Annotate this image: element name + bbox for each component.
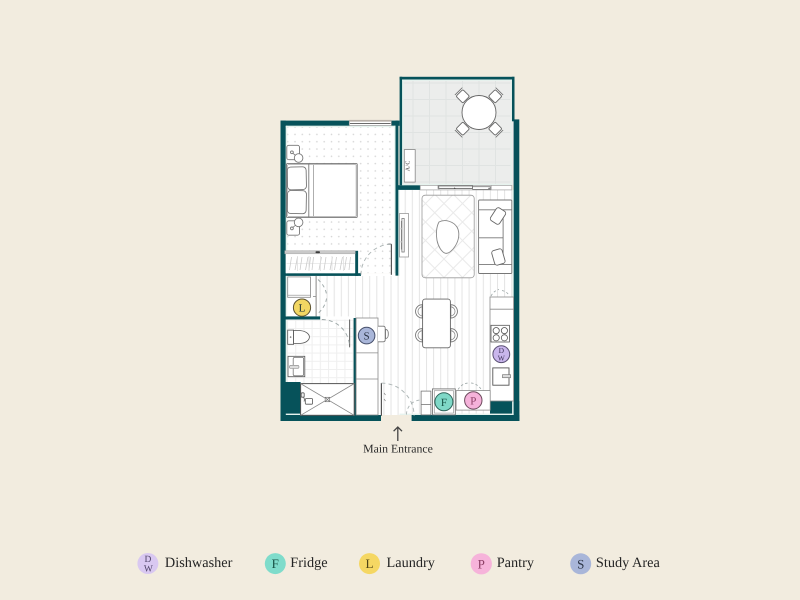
svg-text:Laundry: Laundry: [387, 555, 436, 571]
svg-text:A/C: A/C: [406, 160, 412, 171]
svg-text:S: S: [577, 556, 584, 571]
svg-text:F: F: [441, 397, 447, 409]
svg-text:S: S: [364, 331, 370, 343]
svg-text:Fridge: Fridge: [290, 555, 327, 571]
svg-text:Pantry: Pantry: [497, 555, 535, 571]
svg-text:Study Area: Study Area: [596, 555, 661, 571]
svg-text:Main Entrance: Main Entrance: [363, 442, 433, 456]
svg-text:P: P: [470, 395, 476, 407]
svg-text:P: P: [478, 556, 485, 571]
svg-text:W: W: [498, 354, 506, 363]
svg-text:L: L: [299, 303, 306, 315]
svg-text:Dishwasher: Dishwasher: [165, 555, 233, 571]
svg-text:F: F: [272, 556, 279, 571]
svg-text:W: W: [144, 564, 153, 574]
svg-text:D: D: [144, 555, 151, 565]
svg-text:L: L: [366, 556, 374, 571]
